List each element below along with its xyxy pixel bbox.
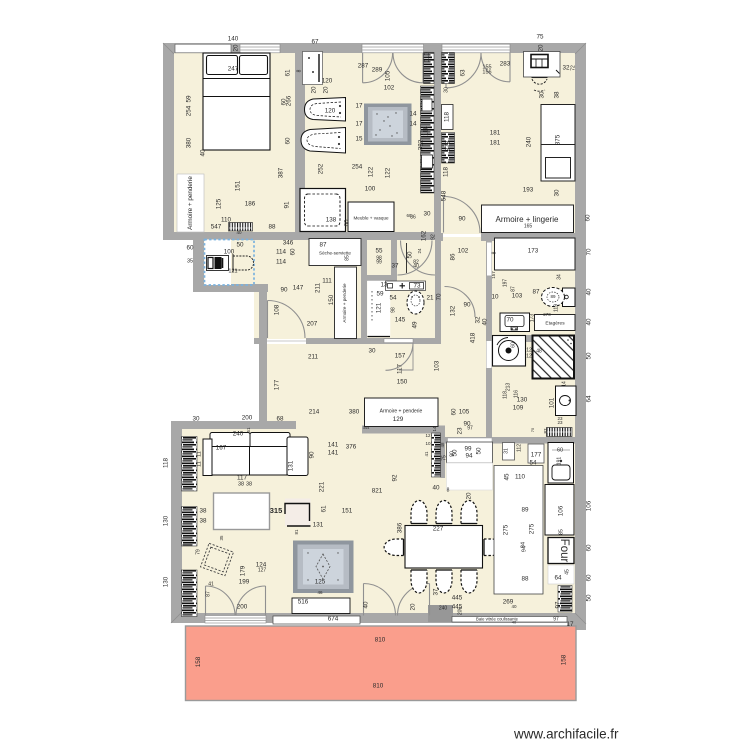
svg-text:40: 40 (511, 604, 517, 609)
svg-text:117: 117 (397, 363, 404, 374)
svg-text:101: 101 (549, 397, 556, 408)
svg-text:30: 30 (423, 211, 431, 218)
svg-text:40: 40 (413, 263, 419, 269)
svg-text:131: 131 (313, 522, 324, 529)
svg-text:Etagères: Etagères (545, 321, 565, 327)
svg-text:120: 120 (322, 78, 333, 85)
svg-text:60: 60 (186, 245, 194, 252)
svg-text:35: 35 (187, 258, 193, 264)
svg-text:100: 100 (224, 249, 235, 256)
svg-text:118: 118 (423, 125, 430, 136)
svg-text:145: 145 (395, 317, 406, 324)
svg-text:167: 167 (216, 445, 227, 452)
svg-text:254: 254 (352, 164, 363, 171)
svg-text:165: 165 (524, 223, 533, 229)
svg-text:14: 14 (409, 111, 417, 118)
svg-text:147: 147 (293, 285, 304, 292)
svg-text:41: 41 (424, 451, 429, 457)
svg-text:380: 380 (349, 409, 360, 416)
svg-text:75: 75 (536, 34, 544, 41)
svg-text:60: 60 (586, 544, 593, 552)
svg-text:97: 97 (467, 425, 473, 431)
svg-text:59: 59 (376, 291, 384, 298)
svg-text:205: 205 (457, 607, 463, 616)
svg-text:90: 90 (463, 302, 471, 309)
svg-text:40: 40 (482, 318, 489, 326)
svg-text:60: 60 (510, 342, 516, 348)
svg-text:49: 49 (412, 321, 419, 329)
svg-text:60: 60 (585, 214, 592, 222)
svg-text:40: 40 (432, 485, 440, 492)
svg-text:386: 386 (397, 522, 404, 533)
svg-text:12: 12 (526, 353, 532, 359)
svg-text:60: 60 (586, 574, 593, 582)
svg-text:110: 110 (424, 51, 431, 62)
svg-text:151: 151 (342, 508, 353, 515)
svg-text:13: 13 (380, 282, 388, 289)
svg-text:114: 114 (276, 249, 287, 256)
svg-text:100: 100 (365, 186, 376, 193)
svg-text:75: 75 (441, 455, 447, 461)
svg-text:72: 72 (570, 65, 576, 71)
svg-text:63: 63 (460, 69, 467, 77)
svg-text:181: 181 (490, 130, 501, 137)
svg-text:173: 173 (529, 314, 535, 323)
svg-text:31: 31 (503, 448, 509, 454)
svg-text:211: 211 (315, 282, 322, 293)
svg-text:40: 40 (586, 288, 593, 296)
svg-text:92: 92 (430, 234, 436, 240)
svg-text:21: 21 (426, 295, 434, 302)
svg-text:158: 158 (195, 656, 202, 667)
svg-text:200: 200 (242, 415, 253, 422)
svg-text:50: 50 (476, 447, 483, 455)
svg-text:181: 181 (490, 140, 501, 147)
svg-text:111: 111 (322, 278, 332, 285)
svg-text:121: 121 (228, 268, 237, 274)
svg-text:38: 38 (199, 508, 207, 515)
svg-text:344: 344 (363, 425, 370, 430)
svg-text:20: 20 (323, 86, 330, 94)
svg-text:114: 114 (276, 259, 287, 266)
svg-text:106: 106 (586, 500, 593, 511)
svg-text:131: 131 (288, 460, 295, 471)
svg-text:110: 110 (515, 474, 526, 481)
svg-text:Meuble + vasque: Meuble + vasque (353, 216, 389, 221)
svg-text:346: 346 (283, 240, 294, 247)
svg-text:247: 247 (228, 66, 239, 73)
svg-text:81: 81 (294, 529, 299, 535)
svg-text:20: 20 (410, 603, 417, 611)
svg-text:287: 287 (358, 63, 369, 70)
svg-text:127: 127 (258, 567, 267, 573)
svg-text:41: 41 (208, 581, 214, 587)
svg-text:20: 20 (233, 44, 240, 52)
svg-text:118: 118 (502, 391, 508, 399)
svg-text:14: 14 (432, 426, 437, 432)
svg-text:375: 375 (555, 134, 562, 145)
svg-text:254: 254 (186, 105, 193, 116)
svg-text:109: 109 (513, 405, 524, 412)
svg-text:Sèche-serviette: Sèche-serviette (319, 251, 351, 256)
svg-text:50: 50 (236, 242, 244, 249)
svg-text:227: 227 (433, 526, 444, 533)
svg-text:99: 99 (464, 446, 472, 453)
svg-text:150: 150 (328, 294, 335, 305)
svg-text:70: 70 (436, 293, 443, 301)
svg-text:129: 129 (393, 416, 404, 423)
svg-text:60: 60 (344, 219, 351, 227)
svg-text:151: 151 (235, 180, 242, 191)
svg-text:200: 200 (237, 604, 248, 611)
svg-text:40: 40 (236, 230, 242, 235)
svg-text:157: 157 (395, 353, 406, 360)
svg-text:79: 79 (195, 549, 201, 555)
svg-text:70: 70 (506, 317, 514, 324)
svg-text:214: 214 (309, 409, 320, 416)
svg-text:20: 20 (311, 86, 318, 94)
svg-text:67: 67 (311, 39, 319, 46)
svg-text:252: 252 (318, 163, 325, 174)
svg-text:64: 64 (586, 395, 593, 403)
svg-text:105: 105 (459, 409, 470, 416)
svg-text:141: 141 (328, 442, 339, 449)
svg-text:130: 130 (163, 576, 170, 587)
svg-text:150: 150 (397, 379, 408, 386)
svg-text:125: 125 (216, 198, 223, 209)
svg-text:54: 54 (529, 460, 537, 467)
svg-text:122: 122 (385, 167, 392, 178)
svg-text:90: 90 (309, 451, 316, 459)
svg-text:240: 240 (233, 431, 244, 438)
svg-text:87: 87 (205, 591, 211, 597)
svg-text:87: 87 (510, 286, 516, 292)
svg-text:158: 158 (561, 654, 568, 665)
svg-text:105: 105 (385, 70, 392, 81)
svg-text:8: 8 (447, 487, 450, 493)
svg-text:382: 382 (418, 139, 425, 150)
svg-text:20: 20 (538, 44, 545, 52)
svg-text:30: 30 (192, 416, 200, 423)
svg-text:40: 40 (363, 601, 370, 609)
svg-text:23: 23 (457, 427, 464, 435)
svg-text:197: 197 (502, 279, 508, 288)
svg-text:516: 516 (298, 599, 309, 606)
svg-text:17: 17 (566, 621, 574, 628)
svg-text:289: 289 (372, 67, 383, 74)
svg-text:17: 17 (355, 121, 363, 128)
svg-text:70: 70 (586, 248, 593, 256)
svg-text:8: 8 (491, 251, 497, 254)
svg-text:138: 138 (326, 217, 337, 224)
svg-text:12: 12 (425, 433, 431, 438)
svg-text:www.archifacile.fr: www.archifacile.fr (513, 726, 619, 742)
svg-text:821: 821 (372, 488, 383, 495)
svg-text:37: 37 (391, 263, 399, 270)
svg-text:179: 179 (240, 565, 247, 576)
svg-text:90: 90 (458, 216, 466, 223)
svg-text:112: 112 (516, 444, 522, 452)
svg-text:20: 20 (466, 492, 473, 500)
svg-text:87: 87 (319, 242, 327, 249)
svg-text:116: 116 (513, 390, 519, 398)
svg-text:674: 674 (328, 616, 339, 623)
svg-text:60: 60 (557, 447, 563, 453)
svg-text:548: 548 (441, 190, 448, 201)
svg-text:32: 32 (475, 316, 482, 324)
svg-text:88: 88 (268, 224, 276, 231)
svg-text:132: 132 (450, 305, 457, 316)
svg-text:48: 48 (536, 348, 542, 354)
svg-text:23: 23 (557, 420, 563, 425)
svg-text:86: 86 (450, 253, 457, 261)
svg-text:75: 75 (530, 427, 535, 432)
svg-text:103: 103 (512, 293, 523, 300)
svg-text:97: 97 (553, 616, 559, 622)
svg-text:199: 199 (239, 579, 250, 586)
svg-text:140: 140 (228, 36, 239, 43)
svg-text:102: 102 (384, 85, 395, 92)
svg-text:30: 30 (554, 189, 561, 197)
svg-text:119: 119 (553, 304, 559, 312)
svg-text:418: 418 (470, 332, 477, 343)
svg-text:10: 10 (491, 294, 499, 301)
svg-text:118: 118 (444, 111, 451, 122)
svg-text:46: 46 (317, 590, 323, 595)
svg-text:89: 89 (521, 507, 529, 514)
svg-text:213: 213 (505, 383, 511, 392)
svg-text:98: 98 (390, 307, 396, 313)
svg-text:157: 157 (491, 271, 496, 279)
svg-text:88: 88 (521, 576, 529, 583)
svg-text:240: 240 (526, 136, 533, 147)
svg-text:810: 810 (375, 637, 386, 644)
svg-text:810: 810 (373, 683, 384, 690)
svg-text:45: 45 (504, 473, 511, 481)
svg-text:270: 270 (543, 312, 551, 317)
svg-text:125: 125 (315, 579, 326, 586)
svg-text:177: 177 (274, 379, 281, 390)
svg-text:94: 94 (521, 546, 527, 552)
svg-text:60: 60 (290, 248, 297, 256)
svg-text:97: 97 (555, 601, 562, 609)
svg-text:121: 121 (376, 302, 383, 313)
svg-text:8: 8 (296, 69, 302, 72)
svg-text:Four: Four (558, 539, 570, 563)
svg-text:54: 54 (389, 295, 397, 302)
svg-text:68: 68 (276, 416, 284, 423)
svg-text:64: 64 (554, 575, 562, 582)
svg-text:15: 15 (355, 136, 363, 143)
svg-text:275: 275 (529, 523, 536, 534)
svg-text:85: 85 (344, 255, 350, 261)
svg-text:118: 118 (443, 166, 450, 177)
svg-text:94: 94 (465, 453, 473, 460)
svg-text:102: 102 (458, 248, 469, 255)
svg-text:40: 40 (512, 620, 517, 625)
svg-text:32: 32 (562, 65, 570, 72)
svg-text:Armoire + penderie: Armoire + penderie (342, 283, 347, 323)
svg-text:61: 61 (285, 69, 292, 77)
svg-text:50: 50 (586, 352, 593, 360)
svg-text:103: 103 (434, 360, 441, 371)
svg-text:17: 17 (355, 103, 363, 110)
svg-text:191: 191 (556, 457, 562, 466)
svg-text:547: 547 (211, 224, 222, 231)
svg-text:35: 35 (219, 535, 224, 541)
svg-text:40: 40 (200, 149, 207, 157)
svg-text:376: 376 (346, 444, 357, 451)
svg-text:40: 40 (586, 318, 593, 326)
svg-text:87: 87 (532, 289, 540, 296)
svg-text:Armoire + penderie: Armoire + penderie (187, 176, 194, 230)
svg-text:37: 37 (433, 588, 440, 596)
svg-text:91: 91 (284, 201, 291, 209)
svg-text:89: 89 (550, 294, 556, 299)
svg-text:177: 177 (531, 452, 542, 459)
svg-text:59: 59 (186, 95, 193, 103)
svg-text:90: 90 (280, 287, 288, 294)
svg-text:85: 85 (558, 529, 564, 535)
svg-text:48: 48 (440, 442, 445, 448)
svg-text:38: 38 (246, 481, 252, 487)
svg-text:10: 10 (425, 441, 431, 446)
svg-text:92: 92 (392, 474, 399, 482)
svg-text:122: 122 (368, 166, 375, 177)
svg-text:162: 162 (421, 230, 428, 241)
svg-text:11: 11 (196, 461, 202, 467)
svg-text:60: 60 (406, 213, 412, 218)
svg-text:118: 118 (163, 457, 170, 468)
svg-text:193: 193 (523, 187, 534, 194)
svg-text:73: 73 (413, 283, 421, 290)
svg-text:283: 283 (500, 61, 511, 68)
svg-text:Armoire + penderie: Armoire + penderie (380, 408, 423, 414)
svg-text:61: 61 (321, 505, 328, 513)
svg-text:186: 186 (245, 201, 256, 208)
svg-text:24: 24 (417, 248, 422, 254)
svg-text:240: 240 (439, 605, 448, 611)
svg-text:173: 173 (528, 248, 539, 255)
svg-text:99: 99 (376, 259, 382, 265)
svg-text:211: 211 (308, 354, 319, 361)
svg-text:110: 110 (221, 217, 232, 224)
svg-text:30: 30 (443, 87, 449, 93)
svg-text:207: 207 (307, 321, 318, 328)
svg-text:50: 50 (407, 251, 414, 259)
svg-text:108: 108 (274, 304, 281, 315)
svg-text:380: 380 (186, 137, 193, 148)
svg-text:38: 38 (238, 481, 244, 487)
svg-text:30: 30 (539, 91, 546, 99)
svg-text:55: 55 (375, 248, 383, 255)
svg-text:38: 38 (554, 91, 561, 99)
svg-text:14: 14 (409, 121, 417, 128)
svg-text:315: 315 (270, 506, 283, 515)
svg-text:141: 141 (328, 450, 339, 457)
svg-text:14: 14 (561, 381, 567, 387)
svg-text:90: 90 (449, 451, 455, 457)
svg-text:106: 106 (558, 505, 565, 516)
svg-text:11: 11 (196, 451, 202, 457)
svg-text:60: 60 (451, 408, 458, 416)
svg-text:387: 387 (278, 167, 285, 178)
svg-text:445: 445 (452, 595, 463, 602)
svg-text:34: 34 (556, 274, 562, 280)
svg-text:30: 30 (368, 348, 376, 355)
svg-text:156: 156 (482, 69, 491, 75)
svg-text:120: 120 (325, 108, 336, 115)
svg-text:38: 38 (199, 518, 207, 525)
svg-text:221: 221 (319, 481, 326, 492)
svg-text:378: 378 (445, 140, 452, 151)
svg-text:60: 60 (285, 137, 292, 145)
svg-text:50: 50 (586, 594, 593, 602)
svg-text:275: 275 (503, 524, 510, 535)
svg-text:87: 87 (543, 428, 548, 434)
svg-text:60: 60 (281, 98, 288, 106)
svg-text:51: 51 (246, 427, 251, 433)
svg-text:130: 130 (163, 515, 170, 526)
svg-text:45: 45 (564, 569, 570, 575)
